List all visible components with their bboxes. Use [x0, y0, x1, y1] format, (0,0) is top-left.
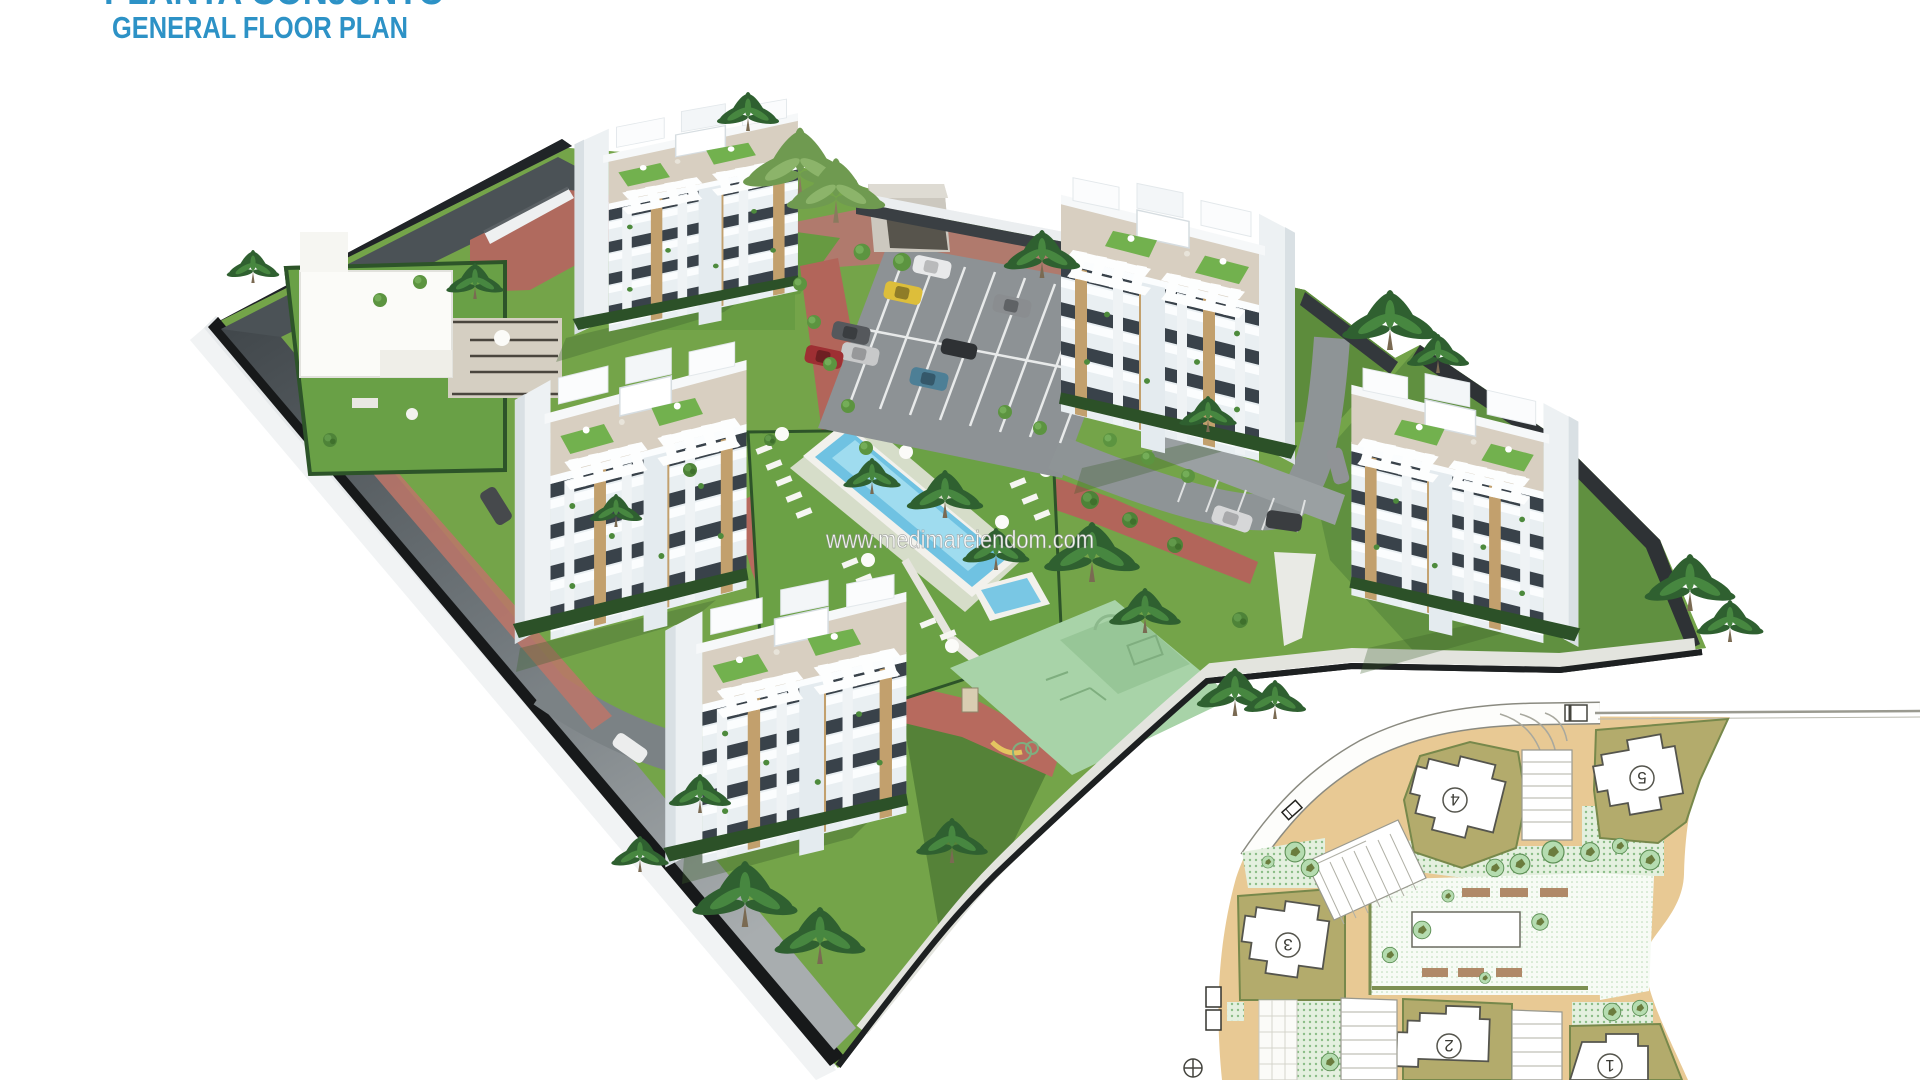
- svg-text:4: 4: [1450, 790, 1459, 809]
- svg-text:1: 1: [1605, 1056, 1614, 1075]
- svg-text:www.medimareiendom.com: www.medimareiendom.com: [825, 526, 1094, 554]
- svg-text:5: 5: [1637, 768, 1646, 787]
- svg-text:2: 2: [1444, 1036, 1453, 1055]
- svg-text:3: 3: [1283, 935, 1292, 954]
- svg-text:GENERAL FLOOR PLAN: GENERAL FLOOR PLAN: [112, 10, 408, 45]
